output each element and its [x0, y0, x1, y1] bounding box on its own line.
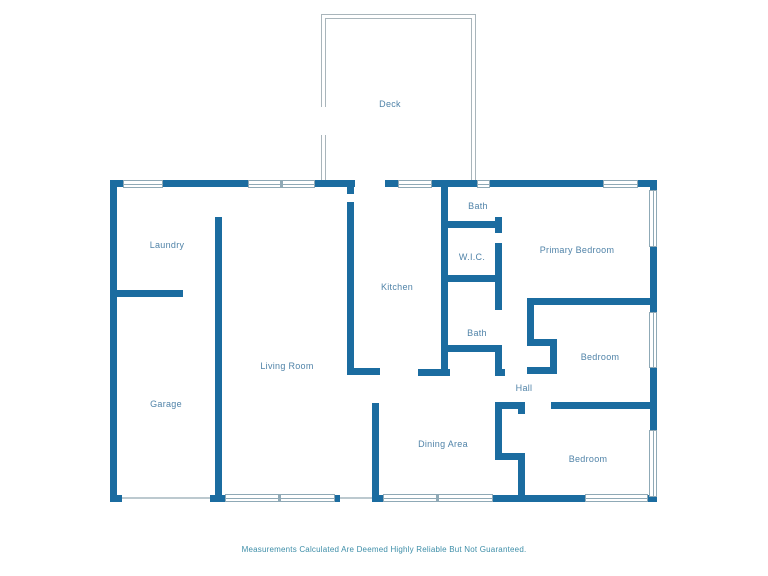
room-label-deck: Deck	[379, 99, 401, 109]
window-pane-line	[399, 184, 431, 185]
window-mullion	[436, 495, 439, 501]
wall-segment	[210, 495, 225, 502]
wall-segment	[385, 180, 398, 187]
window-symbol	[649, 430, 657, 497]
window-symbol	[383, 494, 493, 502]
opening-line	[122, 497, 210, 499]
wall-segment	[518, 402, 525, 414]
deck-wall-gap	[319, 107, 328, 135]
room-label-living-room: Living Room	[260, 361, 313, 371]
wall-segment	[495, 217, 502, 233]
room-label-bath: Bath	[468, 201, 488, 211]
wall-segment	[441, 275, 502, 282]
window-pane-line	[124, 184, 162, 185]
window-symbol	[248, 180, 315, 188]
wall-segment	[527, 367, 557, 374]
window-symbol	[398, 180, 432, 188]
window-pane-line	[653, 431, 654, 496]
wall-segment	[495, 402, 502, 460]
room-label-garage: Garage	[150, 399, 182, 409]
wall-segment	[163, 180, 248, 187]
wall-segment	[347, 187, 354, 194]
window-mullion	[278, 495, 281, 501]
window-symbol	[123, 180, 163, 188]
room-label-w-i-c: W.I.C.	[459, 252, 485, 262]
wall-segment	[418, 369, 450, 376]
room-label-dining-area: Dining Area	[418, 439, 468, 449]
wall-segment	[315, 180, 355, 187]
wall-segment	[650, 180, 657, 190]
wall-segment	[551, 402, 657, 409]
wall-segment	[441, 221, 502, 228]
window-pane-line	[478, 184, 489, 185]
window-pane-line	[653, 191, 654, 246]
window-symbol	[225, 494, 335, 502]
wall-segment	[495, 369, 505, 376]
window-pane-line	[653, 313, 654, 367]
room-label-bath: Bath	[467, 328, 487, 338]
window-symbol	[477, 180, 490, 188]
window-pane-line	[604, 184, 637, 185]
room-label-bedroom: Bedroom	[581, 352, 620, 362]
wall-segment	[347, 202, 354, 374]
measurement-disclaimer: Measurements Calculated Are Deemed Highl…	[0, 545, 768, 554]
room-label-hall: Hall	[516, 383, 533, 393]
opening-line	[340, 497, 372, 499]
wall-segment	[441, 345, 502, 352]
wall-segment	[110, 495, 122, 502]
room-label-kitchen: Kitchen	[381, 282, 413, 292]
floor-plan-canvas: DeckLaundryBathW.I.C.Primary BedroomKitc…	[0, 0, 768, 576]
wall-segment	[347, 368, 380, 375]
wall-segment	[372, 495, 383, 502]
wall-segment	[527, 298, 657, 305]
room-label-laundry: Laundry	[150, 240, 185, 250]
wall-segment	[495, 243, 502, 310]
wall-segment	[650, 368, 657, 430]
window-symbol	[603, 180, 638, 188]
window-mullion	[280, 181, 283, 187]
window-symbol	[649, 190, 657, 247]
window-symbol	[585, 494, 648, 502]
wall-segment	[110, 180, 117, 502]
wall-segment	[372, 403, 379, 495]
wall-segment	[518, 453, 525, 495]
wall-segment	[432, 180, 477, 187]
wall-segment	[110, 290, 183, 297]
wall-segment	[493, 495, 585, 502]
window-symbol	[649, 312, 657, 368]
window-pane-line	[586, 498, 647, 499]
room-label-bedroom: Bedroom	[569, 454, 608, 464]
wall-segment	[490, 180, 603, 187]
wall-segment	[215, 217, 222, 495]
room-label-primary-bedroom: Primary Bedroom	[540, 245, 615, 255]
